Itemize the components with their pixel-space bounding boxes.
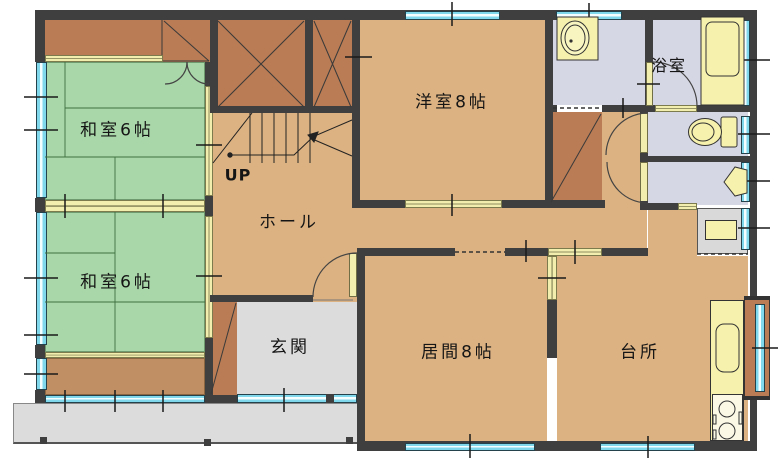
stair-closet-left [218,20,305,108]
linen-closet [550,112,602,203]
wall-tatami-e3 [205,338,213,400]
wall-genkan-right [357,248,365,446]
ima-window [405,443,535,451]
floor-plan: 和室6帖 和室6帖 洋室8帖 浴室 ホール UP 玄関 居間8帖 台所 [0,0,780,463]
engawa-veranda [45,358,205,395]
oshiire-sliding-doors [45,55,163,62]
corridor-toilet [602,112,645,205]
yoshitsu-sliding-opening [405,200,502,208]
wall-stair-left [210,10,218,112]
wall-left-1 [35,10,45,62]
label-genkan: 玄関 [270,333,310,358]
wall-left-2 [35,198,45,212]
engawa-window-2 [36,212,47,345]
label-washitsu-top: 和室6帖 [80,116,154,141]
engawa-window-south [45,395,205,403]
engawa-window-1 [36,62,47,198]
wall-left-3 [35,345,45,358]
shoji-opening-bottom [205,216,213,338]
wall-stair-bottom [210,106,360,113]
wall-tatami-e2 [205,196,213,216]
washroom [553,20,645,105]
utility-opening [678,203,697,210]
engawa-window-3 [36,358,47,390]
wall-ima-n1 [357,248,455,256]
label-hall: ホール [259,208,319,233]
yoshitsu-window [405,11,500,20]
basin-door-leaf [640,162,648,203]
wall-toilet-basin [645,156,756,162]
wall-kitchen-n [602,248,648,256]
basin-window [741,162,750,202]
label-yokushitsu: 浴室 [651,52,687,76]
toilet-window [741,116,750,154]
fusuma-divider [45,200,205,212]
wall-yoshitsu-s1 [352,200,405,208]
genkan-door-leaf [349,253,357,297]
bay-window-glass [755,304,765,392]
label-ima: 居間8帖 [421,338,495,363]
wall-closet-bottom [545,200,605,208]
shoe-cabinet [210,302,237,395]
wall-wash-s2 [697,105,756,112]
entrance-porch [13,403,360,444]
washroom-window [556,11,622,20]
entrance-door-stile [326,394,334,403]
wall-stair-mid [305,10,313,108]
label-daidokoro: 台所 [620,338,660,363]
label-stairs-up: UP [225,166,252,185]
tokonoma-closet [163,20,210,62]
wall-genkan-top [210,295,313,302]
bath-door-sill [655,105,697,112]
wall-entrance-left [205,395,237,403]
entrance-sliding-door [237,394,357,403]
gas-stove [712,394,743,441]
toilet-room [648,112,748,156]
label-washitsu-bottom: 和室6帖 [80,268,154,293]
label-yoshitsu: 洋室8帖 [415,88,489,113]
wall-left-4 [35,390,45,403]
wall-toilet-w3 [640,201,648,210]
wall-corridor-s1 [648,203,678,210]
utility-window [741,208,750,250]
bay-window [744,296,770,400]
basin-room [648,162,748,205]
kitchen-window [600,443,695,451]
utility-box [705,220,737,240]
wall-ima-n2 [505,248,548,256]
ima-kitchen-opening [547,256,557,300]
wall-ima-kitchen [547,300,557,358]
wall-wash-s3 [545,105,557,112]
corridor-kitchen [648,205,697,256]
stair-closet-right [313,20,352,108]
kitchen-entry-opening [548,248,602,256]
bath-window [741,20,750,106]
toilet-door-leaf [640,113,648,153]
